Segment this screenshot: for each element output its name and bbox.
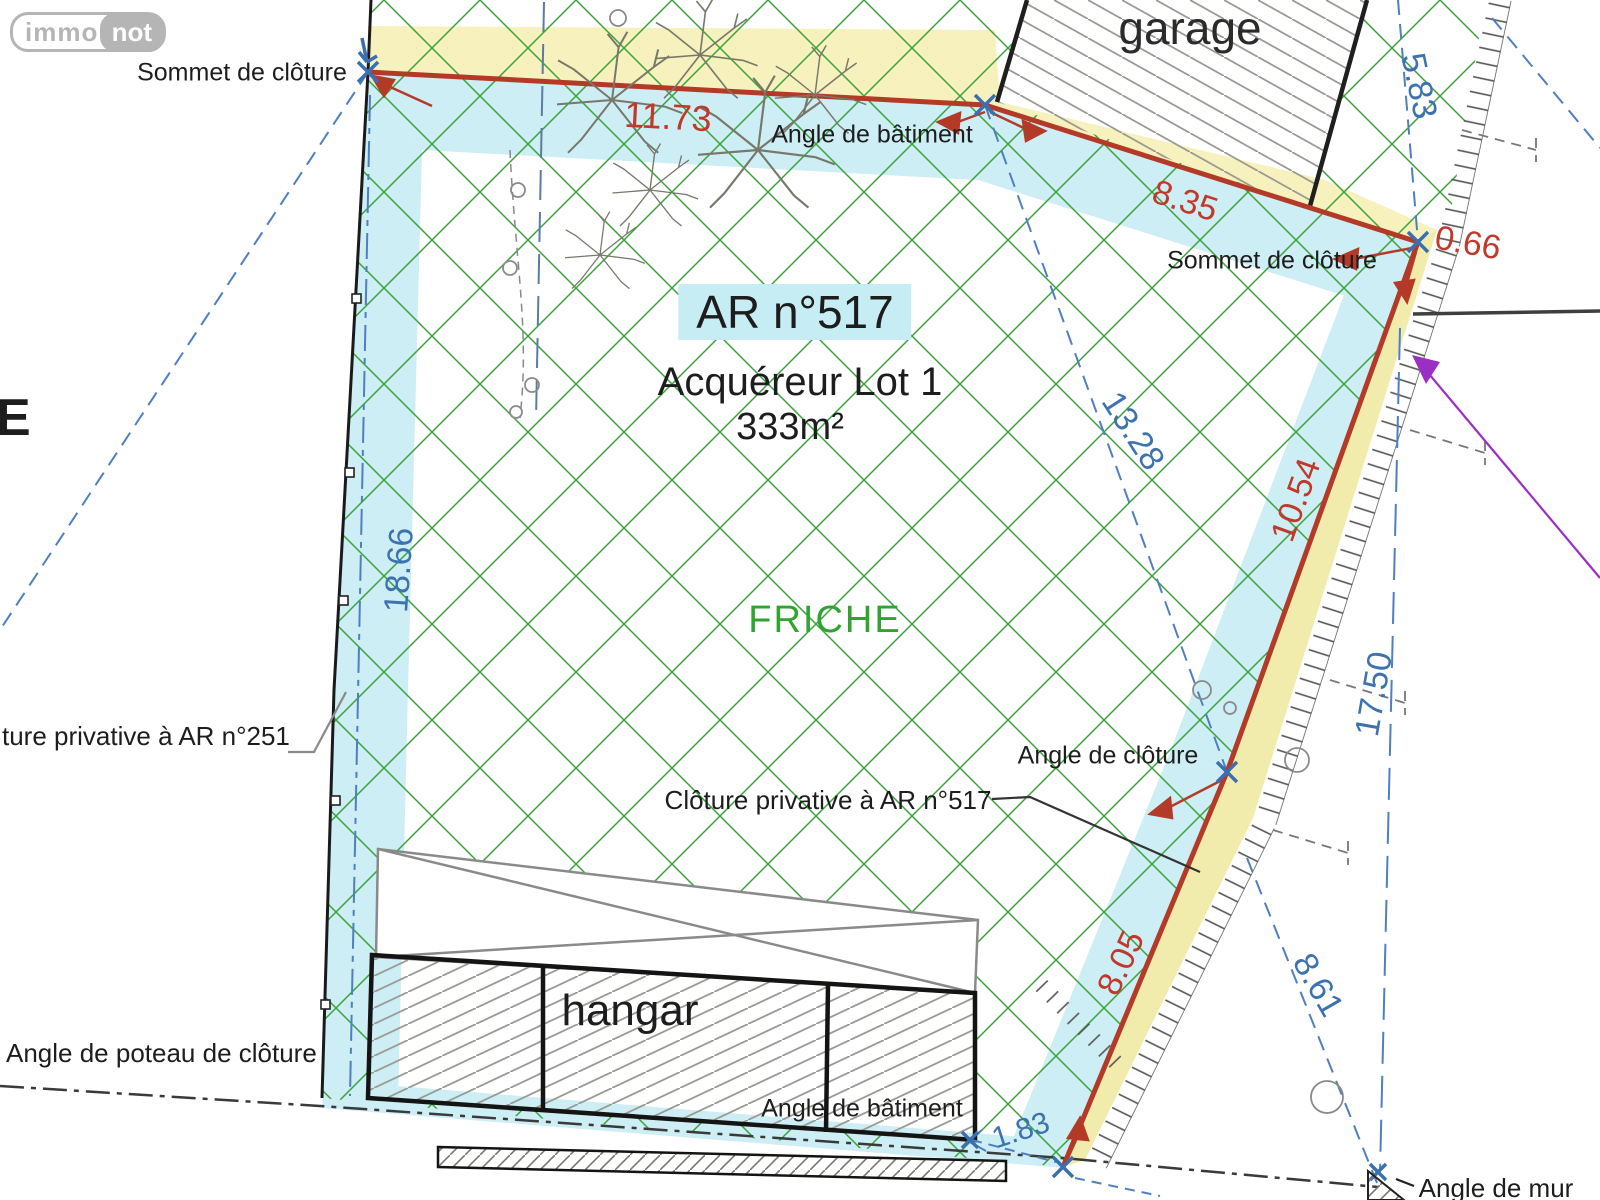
label-sommet-cloture-right: Sommet de clôture [1167, 249, 1377, 274]
label-angle-batiment-bottom: Angle de bâtiment [761, 1097, 963, 1122]
label-angle-cloture: Angle de clôture [1018, 744, 1199, 769]
logo-not-text: not [100, 13, 164, 52]
cadastral-plan: immo not Sommet de clôture Angle de bâti… [0, 0, 1600, 1200]
logo-immo-text: immo [13, 17, 98, 48]
parcel-buyer: Acquéreur Lot 1 [658, 362, 943, 402]
label-sommet-cloture-top: Sommet de clôture [137, 61, 347, 86]
land-state-friche: FRICHE [748, 601, 901, 639]
purple-arrow [1412, 355, 1600, 578]
immonot-logo: immo not [10, 12, 166, 52]
label-hangar: hangar [561, 989, 698, 1033]
measure-18-66: 18.66 [379, 526, 419, 613]
label-cloture-ar517: Clôture privative à AR n°517 [665, 787, 992, 813]
label-angle-mur: Angle de mur [1419, 1175, 1574, 1200]
label-cloture-ar251: ture privative à AR n°251 [2, 723, 290, 749]
adjacent-wall-line [1413, 311, 1600, 314]
measure-11-73: 11.73 [623, 97, 712, 138]
edge-letter: E [0, 392, 31, 444]
wall-corner-wedge [1368, 1171, 1404, 1200]
parcel-area: 333m² [736, 408, 844, 446]
label-angle-batiment-top: Angle de bâtiment [771, 123, 973, 148]
label-garage: garage [1118, 5, 1261, 51]
label-angle-poteau: Angle de poteau de clôture [6, 1040, 317, 1066]
parcel-reference: AR n°517 [678, 284, 911, 340]
